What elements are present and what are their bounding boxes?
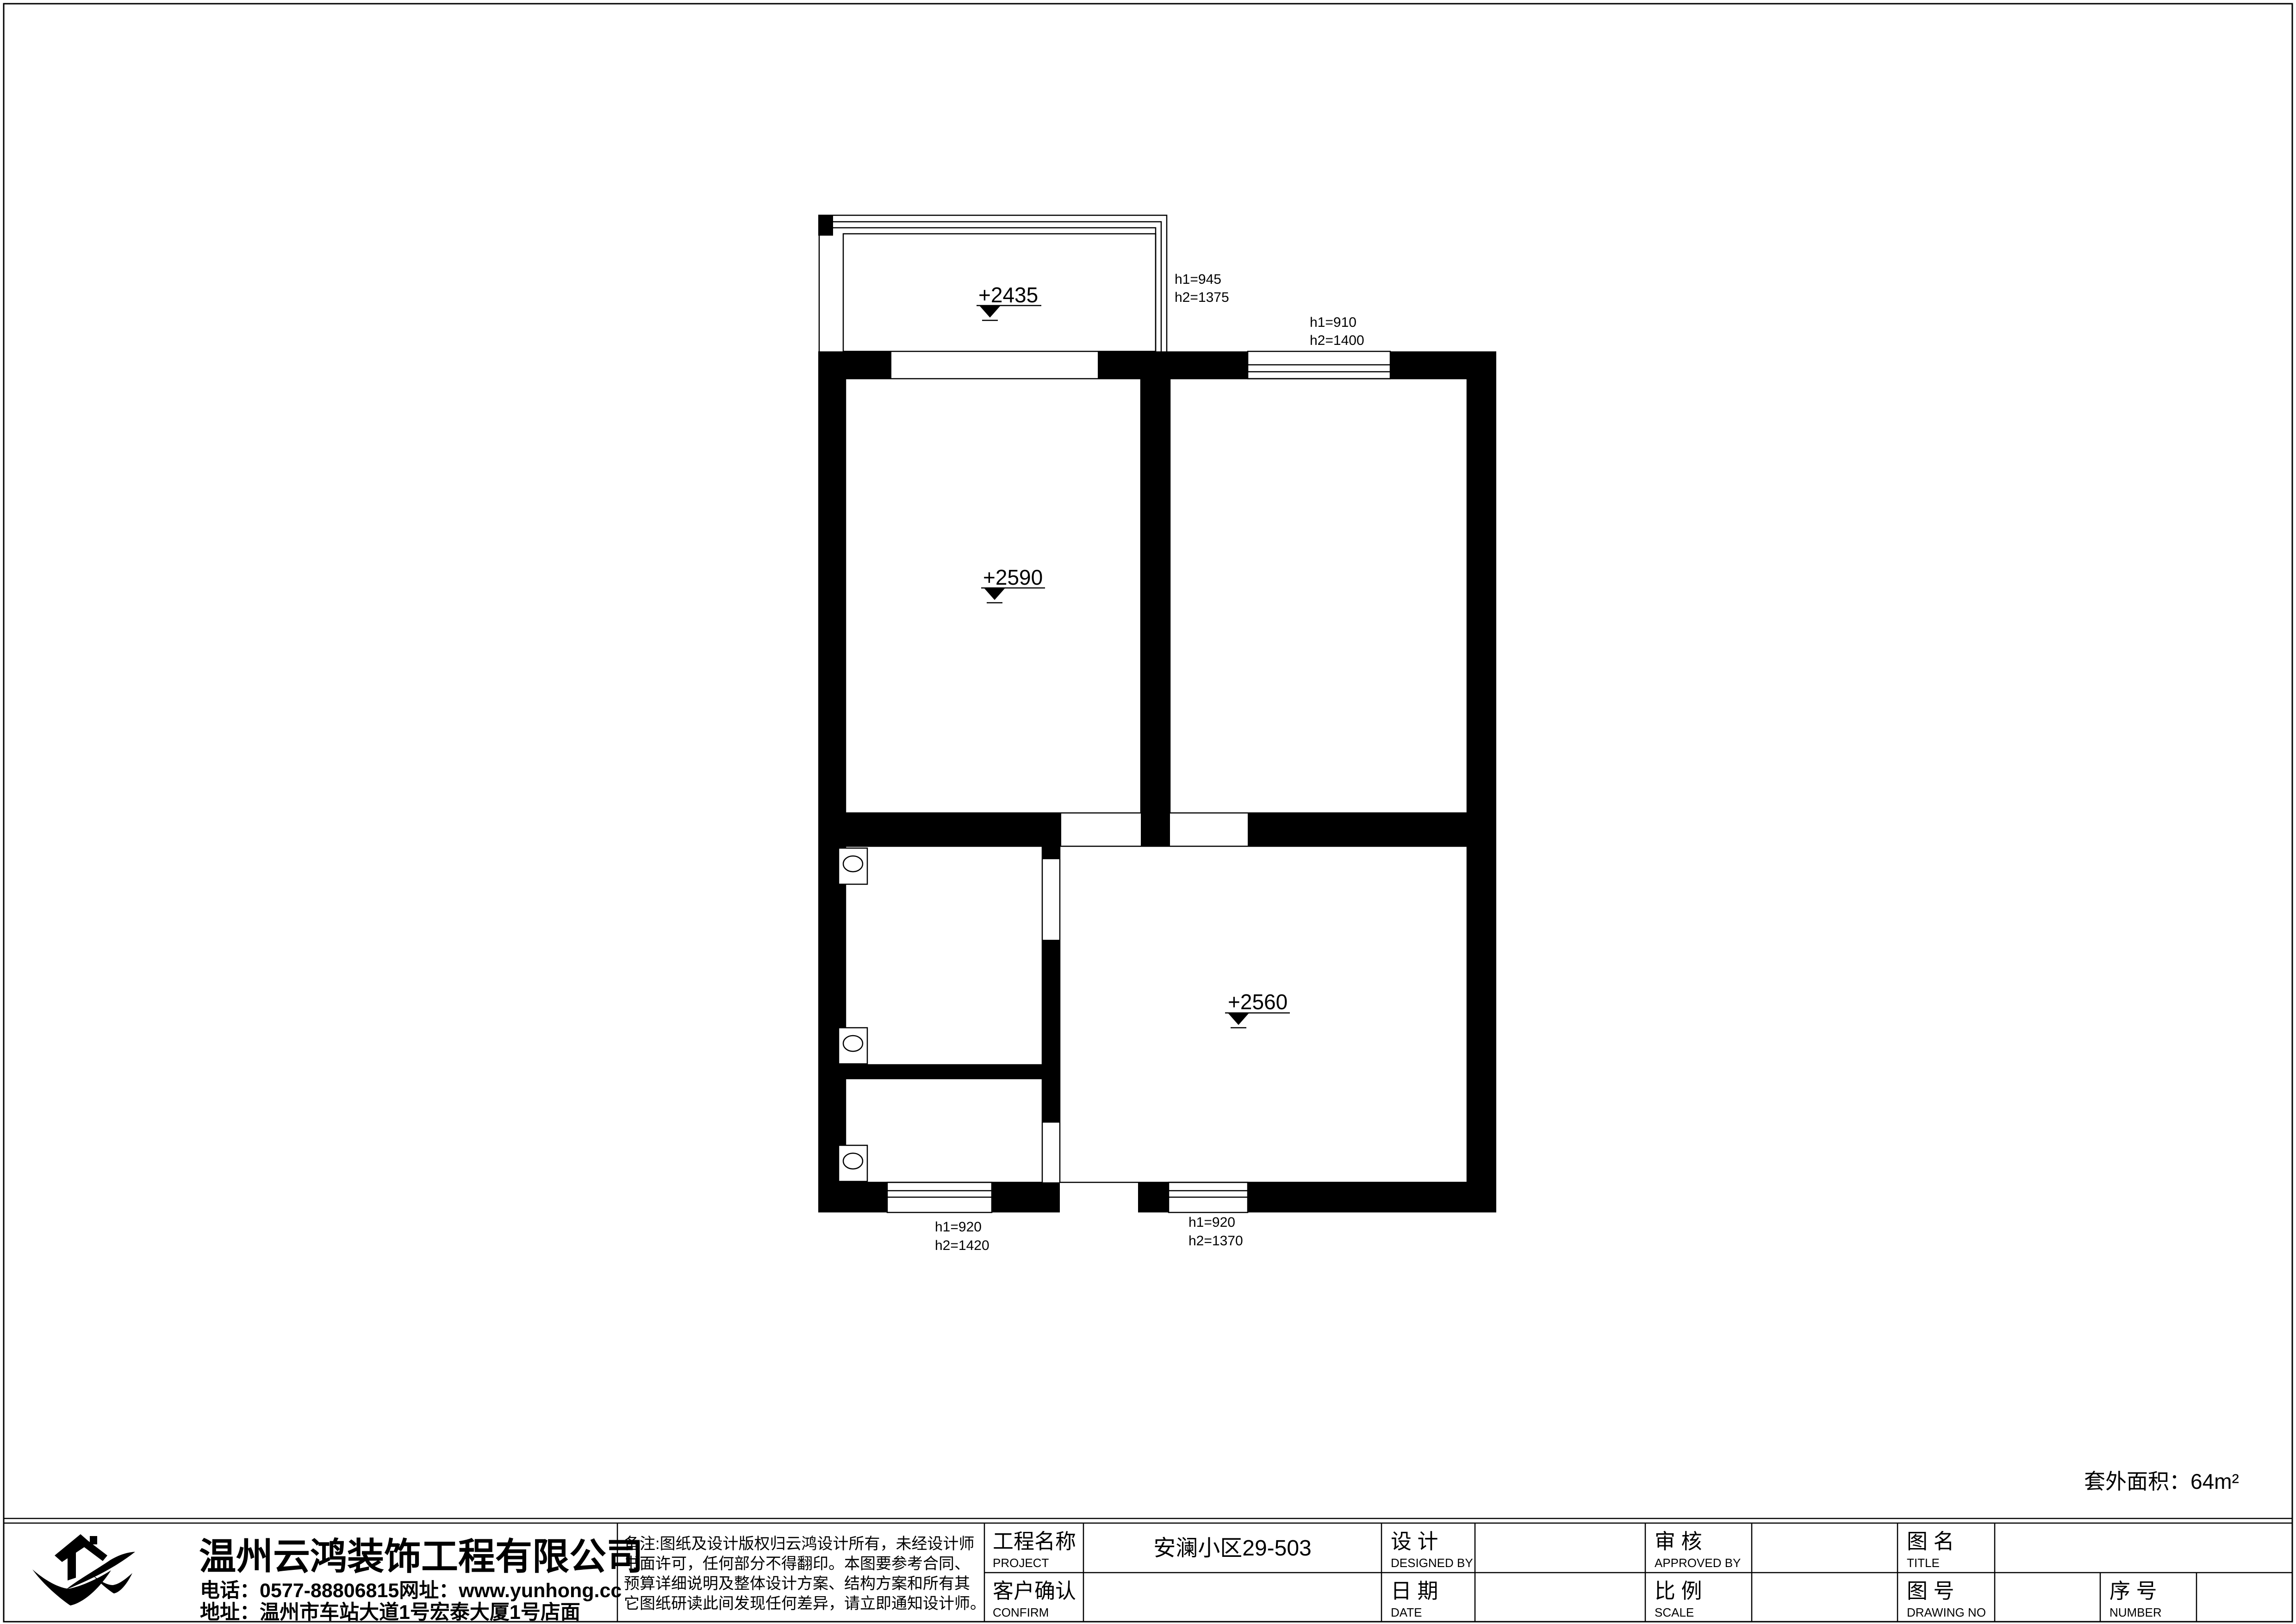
living-room-outline <box>1060 846 1467 1182</box>
company-address-line: 地址：温州市车站大道1号宏泰大厦1号店面 <box>200 1601 580 1624</box>
annotation-bottom-right-h1: h1=920 <box>1188 1215 1235 1230</box>
annotation-bedroom-right-h1: h1=910 <box>1310 315 1356 330</box>
elevation-triangle-icon <box>1228 1013 1249 1025</box>
annotation-balcony-h2: h2=1375 <box>1175 290 1229 305</box>
title-label-en: TITLE <box>1907 1556 1940 1570</box>
company-name: 温州云鸿装饰工程有限公司 <box>199 1536 643 1577</box>
designed-by-label-en: DESIGNED BY <box>1391 1556 1473 1570</box>
outer-area-note: 套外面积：64m² <box>2084 1469 2239 1493</box>
date-label-en: DATE <box>1391 1605 1422 1619</box>
drawing-no-label-en: DRAWING NO <box>1907 1605 1986 1619</box>
project-label-en: PROJECT <box>993 1556 1049 1570</box>
fixture-box-middle <box>839 1028 867 1064</box>
fixture-square <box>839 1028 867 1064</box>
lower-small-room-outline <box>846 1079 1042 1182</box>
wall-between-bedrooms <box>1141 379 1170 813</box>
bedroom-right-outline <box>1170 379 1467 813</box>
title-block: 温州云鸿装饰工程有限公司 电话：0577-88806815网址：www.yunh… <box>4 1518 2292 1624</box>
company-phone-line: 电话：0577-88806815网址：www.yunhong.cc <box>200 1580 622 1602</box>
upper-small-room-outline <box>846 846 1042 1065</box>
annotation-bottom-left-h1: h1=920 <box>935 1219 982 1235</box>
elevation-marker-bedroom-left: +2590 <box>981 565 1045 603</box>
annotation-bottom-left-h2: h2=1420 <box>935 1238 989 1253</box>
wall-left-exterior <box>818 351 846 1212</box>
company-logo <box>32 1534 135 1605</box>
fixture-box-bottom <box>839 1145 867 1181</box>
floor-plan: +2435 +2590 +2560 h1=945 h2=1375 h <box>818 215 1496 1253</box>
elevation-value: +2435 <box>978 283 1038 307</box>
project-value: 安澜小区29-503 <box>1153 1536 1311 1561</box>
bedroom-right-door-opening <box>1170 813 1248 846</box>
confirm-label-en: CONFIRM <box>993 1605 1049 1619</box>
elevation-value: +2560 <box>1228 990 1288 1014</box>
fixture-box-top <box>839 848 867 884</box>
elevation-marker-living: +2560 <box>1225 990 1290 1028</box>
fixture-square <box>839 1145 867 1181</box>
annotation-balcony-h1: h1=945 <box>1175 272 1221 287</box>
notes-line-3: 预算详细说明及整体设计方案、结构方案和所有其 <box>624 1575 970 1593</box>
date-label: 日 期 <box>1391 1579 1438 1603</box>
project-label: 工程名称 <box>993 1530 1076 1553</box>
wall-right-exterior <box>1467 351 1496 1212</box>
elevation-value: +2590 <box>983 565 1043 589</box>
notes-line-1: 备注:图纸及设计版权归云鸿设计所有，未经设计师 <box>624 1535 974 1553</box>
elevation-markers: +2435 +2590 +2560 <box>977 283 1290 1028</box>
upper-small-room-door-opening <box>1042 859 1060 940</box>
bedroom-left-door-opening <box>1061 813 1141 846</box>
confirm-label: 客户确认 <box>993 1579 1076 1603</box>
logo-house-wall <box>68 1546 76 1580</box>
entry-door-opening <box>1060 1182 1138 1212</box>
title-label: 图 名 <box>1907 1530 1954 1553</box>
wall-small-rooms-divider <box>818 1065 1042 1079</box>
number-label-en: NUMBER <box>2109 1605 2162 1619</box>
window-glazing <box>887 351 1390 1212</box>
elevation-marker-balcony: +2435 <box>977 283 1041 320</box>
notes-line-4: 它图纸研读此间发现任何差异，请立即通知设计师。 <box>624 1595 986 1612</box>
approved-by-label-en: APPROVED BY <box>1655 1556 1741 1570</box>
notes-cell: 备注:图纸及设计版权归云鸿设计所有，未经设计师 书面许可，任何部分不得翻印。本图… <box>624 1535 986 1612</box>
wall-openings <box>887 351 1390 1212</box>
approved-by-label: 审 核 <box>1655 1530 1702 1553</box>
scale-label: 比 例 <box>1655 1579 1702 1603</box>
notes-line-2: 书面许可，任何部分不得翻印。本图要参考合同、 <box>624 1555 970 1573</box>
annotation-bottom-right-h2: h2=1370 <box>1188 1233 1243 1249</box>
logo-roof <box>55 1534 107 1562</box>
balcony-door-opening <box>891 351 1098 379</box>
number-label: 序 号 <box>2109 1579 2157 1603</box>
elevation-triangle-icon <box>984 588 1005 600</box>
annotation-bedroom-right-h2: h2=1400 <box>1310 333 1364 348</box>
scale-label-en: SCALE <box>1655 1605 1694 1619</box>
wall-mid-band <box>846 813 1467 846</box>
drawing-no-label: 图 号 <box>1907 1579 1954 1603</box>
lower-small-room-door-opening <box>1042 1123 1060 1182</box>
drawing-sheet: +2435 +2590 +2560 h1=945 h2=1375 h <box>0 0 2296 1624</box>
company-cell: 温州云鸿装饰工程有限公司 电话：0577-88806815网址：www.yunh… <box>199 1536 643 1624</box>
fixture-square <box>839 848 867 884</box>
elevation-triangle-icon <box>979 306 1001 318</box>
logo-chimney <box>90 1536 97 1544</box>
balcony-corner-post <box>818 215 833 236</box>
designed-by-label: 设 计 <box>1391 1530 1438 1553</box>
